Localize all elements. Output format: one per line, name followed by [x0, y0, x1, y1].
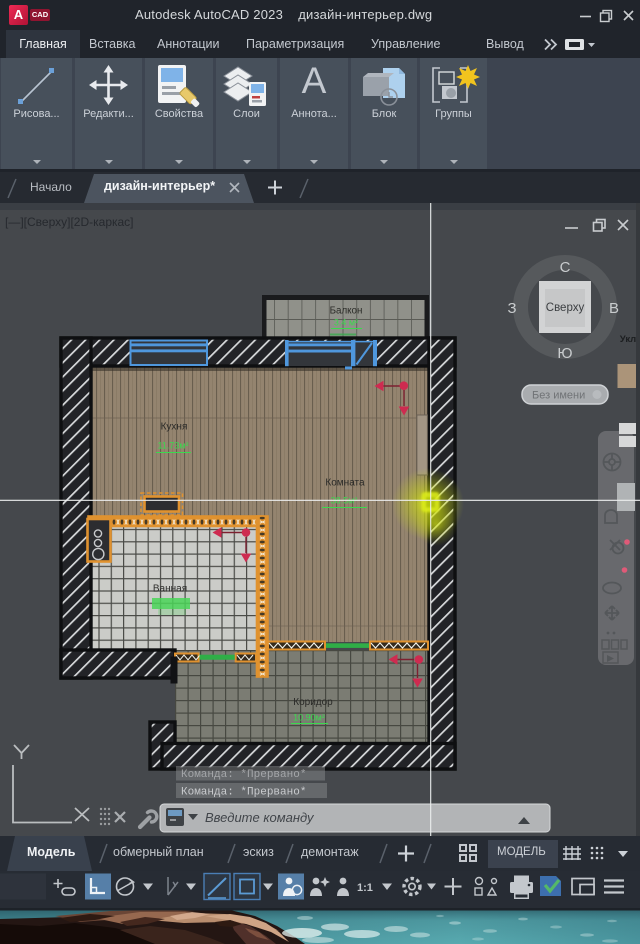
svg-text:Укл: Укл: [620, 334, 636, 345]
svg-text:Балкон: Балкон: [330, 306, 363, 317]
svg-text:З: З: [507, 300, 516, 317]
svg-text:Команда: *Прервано*: Команда: *Прервано*: [181, 787, 306, 799]
svg-text:Кухня: Кухня: [161, 422, 188, 433]
svg-text:[—][Сверху][2D-каркас]: [—][Сверху][2D-каркас]: [5, 215, 134, 229]
svg-text:Без имени: Без имени: [532, 390, 585, 402]
svg-text:Команда: *Прервано*: Команда: *Прервано*: [181, 769, 306, 781]
svg-text:С: С: [560, 259, 571, 276]
svg-text:10.90м²: 10.90м²: [293, 713, 325, 723]
svg-text:11.73м²: 11.73м²: [157, 441, 188, 451]
svg-text:3.4 м²: 3.4 м²: [334, 318, 358, 328]
svg-text:Ю: Ю: [557, 345, 572, 362]
svg-text:1:1: 1:1: [357, 882, 373, 894]
svg-text:Коридор: Коридор: [293, 697, 333, 708]
svg-text:Введите команду: Введите команду: [205, 810, 315, 825]
svg-text:Комната: Комната: [325, 478, 365, 489]
svg-text:Сверху: Сверху: [546, 302, 585, 314]
svg-text:Ванная: Ванная: [153, 584, 187, 595]
svg-text:В: В: [609, 300, 619, 317]
